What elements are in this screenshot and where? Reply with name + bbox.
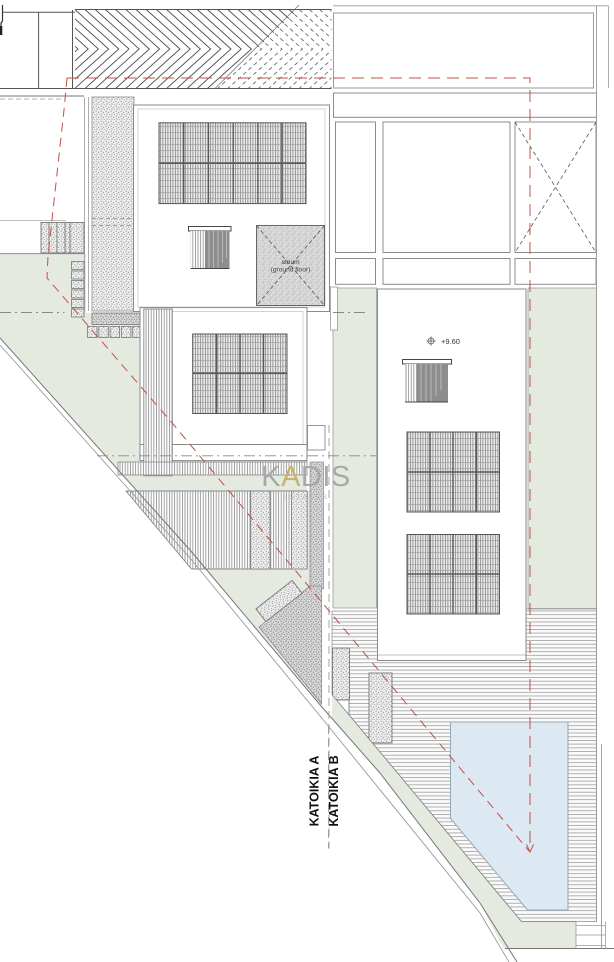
svg-text:KATOIKIA B: KATOIKIA B [327,755,341,826]
svg-text:KATOIKIA A: KATOIKIA A [308,756,322,827]
svg-text:(ground floor): (ground floor) [271,267,311,274]
svg-text:atrium: atrium [281,259,300,266]
svg-text:+9.60: +9.60 [441,337,460,346]
svg-text:KADIS: KADIS [261,461,351,493]
svg-text:ESTATES: ESTATES [283,494,330,501]
